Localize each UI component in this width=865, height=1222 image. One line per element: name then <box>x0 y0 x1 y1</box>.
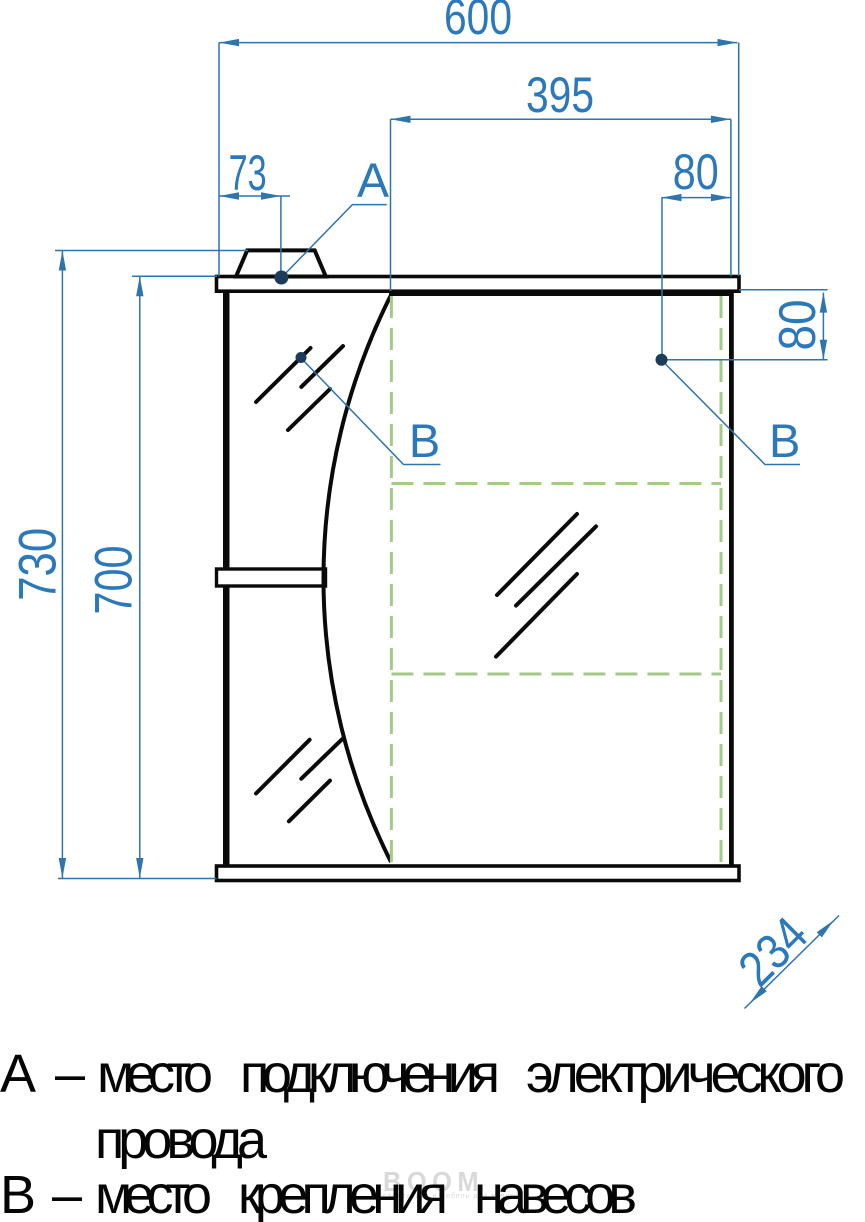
svg-text:место: место <box>95 1165 212 1222</box>
svg-text:B: B <box>409 414 440 467</box>
svg-text:80: 80 <box>673 144 719 200</box>
svg-text:700: 700 <box>85 546 144 615</box>
svg-text:A: A <box>357 155 389 208</box>
svg-text:место: место <box>97 1044 213 1104</box>
svg-text:730: 730 <box>9 528 68 601</box>
svg-text:подключения: подключения <box>240 1044 500 1104</box>
svg-text:навесов: навесов <box>474 1165 637 1222</box>
svg-text:–: – <box>55 1044 85 1104</box>
svg-text:B: B <box>769 414 800 467</box>
svg-text:600: 600 <box>444 0 512 45</box>
svg-text:80: 80 <box>769 300 827 351</box>
svg-text:крепления: крепления <box>238 1165 448 1222</box>
svg-text:73: 73 <box>229 145 267 201</box>
svg-text:провода: провода <box>95 1110 268 1170</box>
svg-text:–: – <box>52 1165 82 1222</box>
svg-text:электрического: электрического <box>526 1044 845 1104</box>
svg-text:А: А <box>0 1044 36 1104</box>
svg-text:395: 395 <box>526 67 594 123</box>
svg-text:В: В <box>0 1165 36 1222</box>
